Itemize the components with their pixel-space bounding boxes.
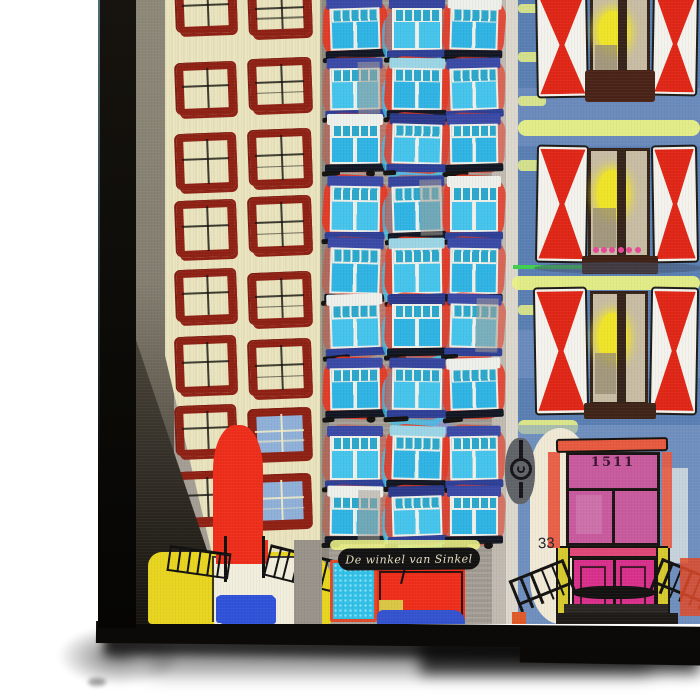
middle-window: [392, 242, 443, 299]
window-glass: [452, 510, 496, 535]
window-frame: [330, 124, 380, 164]
window-glass: [452, 382, 497, 409]
window-transom: [394, 306, 440, 319]
middle-window: [450, 180, 498, 236]
paint-drip-blob: [484, 542, 493, 549]
window-glass: [332, 451, 378, 478]
shutter: [535, 145, 589, 264]
window-transom: [452, 250, 496, 264]
window-cross-h: [255, 363, 304, 367]
window-transom: [332, 438, 378, 451]
shutter: [651, 145, 699, 264]
middle-window: [391, 489, 442, 540]
shop-blue-sign: [218, 595, 274, 622]
window-frame: [391, 123, 442, 164]
left-window: [176, 336, 236, 394]
wall-anchor-spike: [519, 482, 523, 498]
gray-overwash: [357, 62, 380, 114]
shutter-hourglass: [653, 0, 697, 94]
window-transom: [394, 70, 440, 83]
canvas-side-highlight: [98, 0, 100, 490]
window-frame: [450, 496, 498, 536]
window-frame: [392, 248, 443, 295]
window-frame: [330, 186, 381, 233]
middle-window: [330, 118, 380, 168]
middle-window: [330, 362, 381, 415]
window-transom: [332, 188, 378, 202]
window-cross-h: [255, 294, 304, 298]
window-frame: [450, 436, 499, 481]
house-number-text: 33: [538, 535, 555, 553]
fence-post: [224, 536, 227, 582]
shutter: [535, 0, 589, 98]
window-glass: [393, 137, 440, 163]
paint-drip-blob: [366, 416, 375, 423]
window-glass: [452, 202, 496, 231]
window-tan-shape: [595, 353, 616, 394]
middle-window: [450, 118, 499, 169]
window-cross-v: [206, 275, 210, 315]
middle-window: [391, 179, 443, 236]
window-glass: [452, 451, 496, 479]
window-frame: [449, 67, 498, 110]
shop-sign: De winkel van Sinkel: [338, 547, 480, 570]
flower-dot: [593, 247, 599, 253]
window-cross-h: [182, 4, 229, 8]
canvas-bottom-edge: [96, 621, 700, 649]
window-cross-v: [280, 414, 283, 452]
right-window: [590, 291, 648, 405]
window-tan-shape: [593, 208, 615, 248]
left-window: [249, 58, 311, 112]
left-window: [176, 269, 236, 323]
middle-window: [392, 298, 442, 352]
middle-window: [450, 430, 499, 485]
window-glass: [394, 82, 440, 109]
window-cross-v: [280, 135, 284, 180]
window-frame: [450, 186, 498, 232]
window-frame: [329, 7, 380, 50]
stripe-yellow-full: [518, 120, 700, 136]
window-cross-v: [206, 342, 210, 387]
window-cross-h: [182, 291, 229, 295]
window-frame: [391, 495, 442, 536]
fence-post: [262, 536, 265, 578]
window-cross-v: [280, 345, 284, 390]
window-glass: [332, 318, 379, 347]
middle-window: [329, 297, 380, 352]
stoop-step: [556, 613, 678, 624]
middle-window: [449, 1, 498, 54]
shutter-hourglass: [653, 147, 697, 262]
window-transom: [394, 250, 440, 264]
wall-anchor-spike: [519, 440, 523, 460]
window-cross-h: [182, 84, 229, 88]
storefront-blue-band: [377, 610, 465, 624]
middle-window: [392, 362, 443, 415]
door-year-text: 1511: [566, 455, 660, 470]
window-box: [584, 403, 656, 419]
red-patch-right: [680, 558, 700, 616]
door-jamb-right: [662, 452, 672, 548]
paint-drip: [322, 417, 334, 423]
window-cross-h: [182, 360, 229, 364]
window-glass: [393, 450, 440, 479]
window-transom: [452, 188, 496, 202]
window-mullion: [617, 294, 626, 402]
window-transom: [332, 249, 378, 264]
window-cross-h: [255, 429, 304, 433]
left-window: [249, 272, 311, 326]
window-glass: [394, 263, 440, 292]
door-band: [560, 546, 668, 558]
window-cross-h: [255, 6, 304, 10]
window-cross-h: [255, 220, 304, 224]
window-cross-h: [182, 427, 229, 431]
window-cross-v: [206, 68, 210, 108]
window-cross-h: [182, 224, 229, 228]
shop-sign-text: De winkel van Sinkel: [345, 552, 472, 566]
left-window: [176, 200, 236, 258]
shutter-hourglass: [651, 289, 697, 414]
window-cross-v: [206, 477, 210, 517]
window-frame: [330, 436, 380, 480]
window-frame: [449, 7, 498, 50]
fence-baluster: [273, 547, 283, 579]
window-glass: [332, 201, 378, 230]
window-cross-h: [182, 157, 229, 161]
window-cross-h: [255, 80, 304, 84]
right-window: [588, 148, 650, 258]
window-glass: [394, 22, 440, 48]
shutter-hourglass: [535, 289, 587, 414]
window-frame: [391, 435, 442, 480]
transom-divider-v: [612, 488, 615, 543]
left-window: [176, 133, 236, 191]
window-box: [585, 70, 655, 102]
gray-overwash: [419, 179, 443, 236]
window-cross-v: [280, 64, 284, 104]
gray-patch-shop-right: [294, 540, 322, 624]
middle-window: [391, 117, 442, 168]
middle-window: [330, 490, 381, 541]
window-glass: [452, 263, 496, 292]
fence-baluster: [206, 551, 212, 577]
window-transom: [452, 438, 496, 452]
door-pediment: [556, 437, 668, 453]
window-frame: [449, 367, 498, 410]
middle-window: [330, 430, 380, 484]
fence-baluster: [282, 549, 292, 581]
fence-baluster: [196, 549, 202, 575]
shutter-hourglass: [537, 0, 587, 96]
window-cross-v: [280, 0, 283, 29]
window-frame: [450, 248, 499, 295]
left-window: [176, 0, 236, 34]
middle-window: [450, 490, 498, 540]
window-frame: [330, 368, 381, 411]
window-transom: [394, 370, 440, 383]
window-transom: [452, 498, 496, 510]
window-mullion: [617, 151, 626, 255]
window-glass: [394, 382, 440, 409]
middle-window: [449, 297, 498, 352]
door-dark-band: [572, 586, 656, 599]
fence-baluster: [186, 548, 192, 574]
shutter: [651, 0, 699, 96]
flower-dot: [618, 247, 624, 253]
wall-anchor-ring: [510, 458, 532, 480]
window-cross-v: [280, 480, 284, 520]
window-transom: [394, 10, 440, 23]
left-window: [249, 129, 311, 187]
flower-dot: [635, 247, 641, 253]
window-glass: [394, 509, 441, 535]
window-glass: [332, 138, 378, 163]
shutter: [533, 287, 589, 416]
flower-dot: [626, 247, 632, 253]
product-photo: De winkel van Sinkel 1511 33: [0, 0, 700, 700]
left-window: [249, 196, 311, 254]
middle-window: [329, 241, 381, 298]
middle-window: [449, 61, 498, 114]
window-cross-v: [206, 206, 210, 251]
left-window: [249, 339, 311, 397]
middle-window: [329, 1, 380, 54]
shutter-shadow: [534, 262, 700, 274]
window-cross-h: [255, 153, 304, 157]
window-frame: [329, 247, 380, 294]
middle-window: [391, 429, 442, 484]
door-jamb-left: [548, 452, 560, 548]
canvas-side-edge: [98, 0, 136, 628]
window-glass: [451, 22, 496, 49]
window-cross-v: [280, 202, 284, 247]
middle-window: [330, 62, 381, 115]
painting-front: De winkel van Sinkel 1511 33: [136, 0, 700, 624]
window-transom: [332, 126, 378, 138]
fence-baluster: [176, 546, 182, 572]
shutter-hourglass: [537, 147, 587, 262]
window-glass: [332, 22, 379, 49]
window-frame: [392, 368, 443, 411]
shutter: [649, 287, 699, 416]
left-window: [176, 62, 236, 116]
paint-drip: [383, 170, 396, 176]
window-frame: [329, 303, 380, 348]
window-cross-v: [206, 139, 210, 184]
gray-overwash: [357, 490, 380, 540]
left-window: [249, 0, 311, 37]
window-frame: [392, 68, 443, 111]
window-frame: [392, 304, 442, 348]
window-transom: [332, 370, 378, 383]
gray-overwash: [476, 298, 499, 353]
transom-glass-light: [576, 495, 602, 535]
white-divider-strip: [506, 0, 518, 624]
window-glass: [452, 137, 496, 162]
middle-window: [330, 180, 381, 237]
window-cross-v: [206, 411, 209, 449]
painting-artwork: [136, 0, 700, 624]
middle-window: [449, 361, 498, 414]
window-cross-v: [280, 278, 284, 318]
window-glass: [331, 263, 378, 293]
middle-window: [392, 2, 442, 54]
flower-dot: [609, 247, 615, 253]
window-frame: [450, 124, 499, 165]
window-glass: [332, 382, 378, 409]
middle-window: [392, 62, 443, 115]
middle-window: [450, 242, 499, 299]
flower-dot: [601, 247, 607, 253]
orange-patch-small: [512, 612, 526, 624]
wall-anchor-spiral: [517, 465, 525, 473]
canvas-shadow-speck: [88, 678, 106, 686]
window-glass: [452, 82, 497, 109]
window-glass: [394, 319, 440, 346]
window-frame: [392, 8, 442, 50]
fence-baluster: [216, 552, 222, 578]
